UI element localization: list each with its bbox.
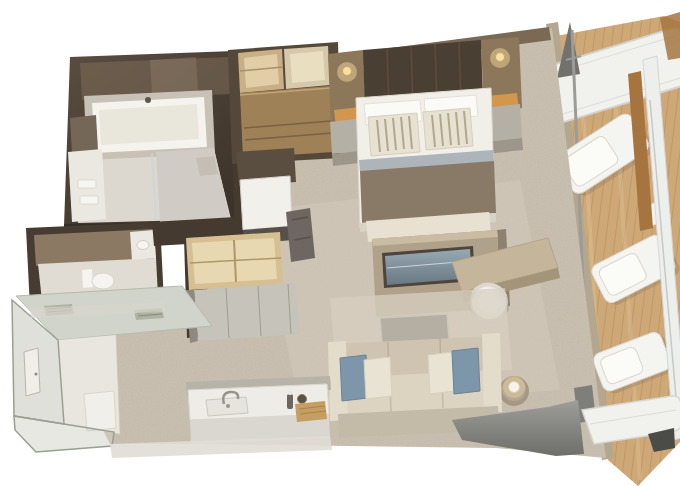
bathroom xyxy=(64,51,238,232)
toilet xyxy=(92,273,114,289)
bottle-icon xyxy=(287,394,293,409)
blue-pillow xyxy=(452,348,480,394)
toilet-tank xyxy=(82,269,93,288)
sofa-armrest xyxy=(482,333,502,413)
towel xyxy=(78,180,96,188)
closet-dresser xyxy=(240,176,292,230)
towel xyxy=(80,196,98,204)
cream-pillow xyxy=(428,352,454,394)
bowl-icon xyxy=(298,395,307,404)
sink xyxy=(137,241,149,250)
tub-faucet-icon xyxy=(145,97,151,103)
bed xyxy=(356,88,496,232)
table-lamp-icon xyxy=(509,382,520,393)
floor-mat xyxy=(84,391,116,431)
floorplan-render xyxy=(0,0,680,486)
cream-pillow xyxy=(364,357,392,399)
wardrobe-doors xyxy=(194,283,300,341)
side-table xyxy=(499,376,529,406)
wall-sconce-icon xyxy=(343,67,352,76)
wall-sconce-icon xyxy=(496,53,505,62)
entry-door xyxy=(24,348,40,396)
floorplan-svg xyxy=(0,0,680,486)
door-handle-icon xyxy=(35,373,38,376)
bathroom-mirror xyxy=(70,115,98,153)
luggage-stand xyxy=(286,208,315,262)
wet-bar xyxy=(186,376,331,444)
